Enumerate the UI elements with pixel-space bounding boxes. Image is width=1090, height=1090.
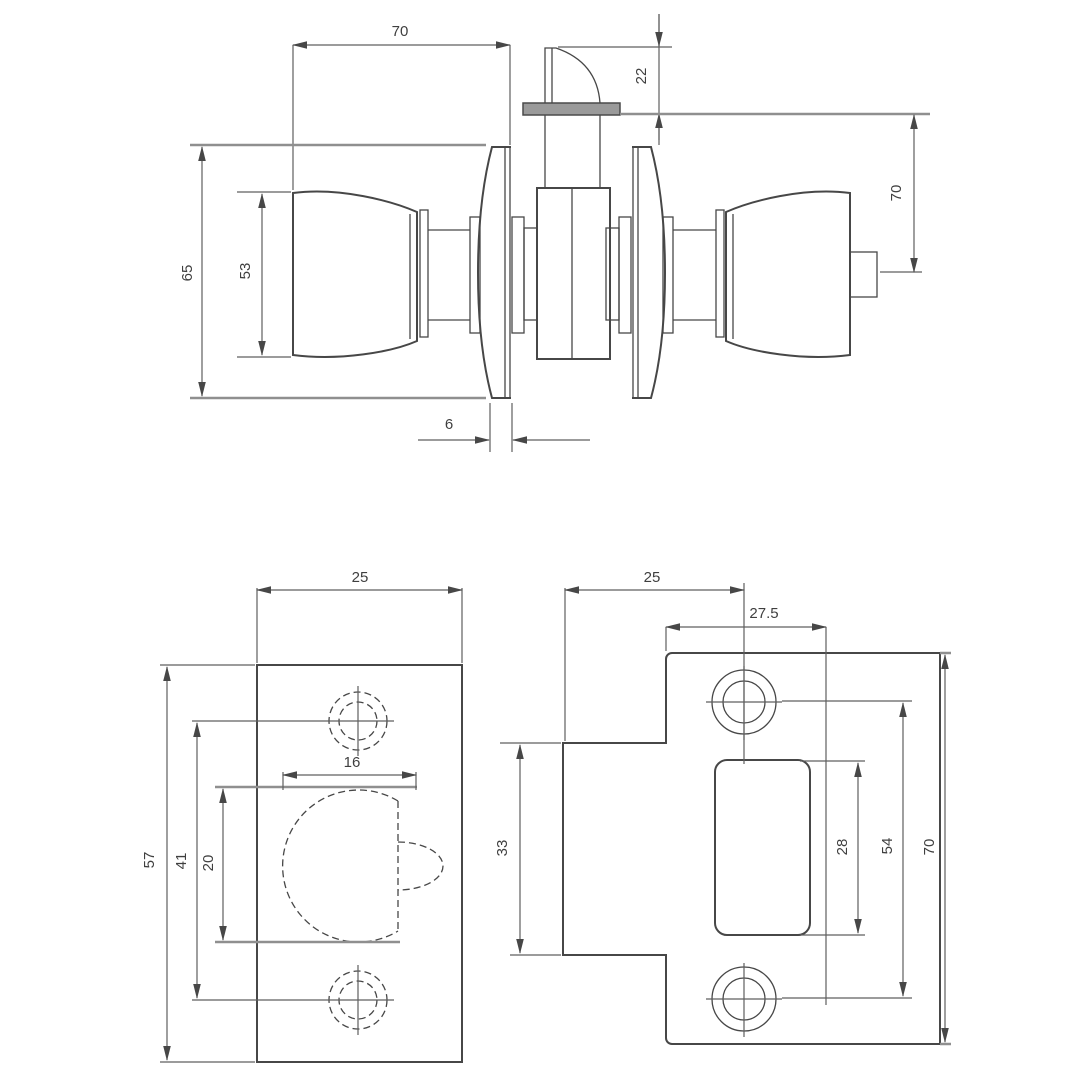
dim-strike-hole-spacing: 54 [879, 703, 903, 996]
latch-bolt-assembly [523, 48, 620, 188]
chassis [537, 188, 610, 359]
right-rose-face [633, 147, 638, 398]
dim-bolt-height-label: 20 [200, 855, 217, 872]
dim-strike-hole-spacing-label: 54 [879, 838, 896, 855]
dim-latch-plate-width-label: 25 [352, 569, 369, 586]
dim-strike-lip-to-center-label: 25 [644, 569, 661, 586]
dim-latch-plate-height-label: 57 [141, 852, 158, 869]
dim-knob-projection: 70 [293, 23, 510, 190]
dim-strike-plate-height: 70 [921, 655, 945, 1042]
left-spacer-outer [512, 217, 524, 333]
dim-strike-opening-height-label: 28 [834, 839, 851, 856]
knob-side-view: 70 22 70 65 53 [179, 14, 930, 452]
dim-rose-thickness-label: 6 [445, 416, 453, 433]
dim-strike-lip-to-center: 25 [565, 569, 744, 741]
dim-backset-label: 70 [888, 185, 905, 202]
dim-knob-diameter-label: 53 [237, 263, 254, 280]
latch-bottom-screw-hole [192, 965, 394, 1035]
left-neck [428, 230, 470, 320]
dim-latch-bolt-throw-label: 22 [633, 68, 650, 85]
latch-top-screw-hole [192, 686, 394, 756]
dim-bolt-width: 16 [283, 754, 416, 790]
dim-strike-lip-height: 33 [494, 743, 561, 955]
dim-strike-edge-to-opening: 27.5 [666, 605, 826, 1005]
dim-strike-lip-height-label: 33 [494, 840, 511, 857]
right-spacer-inner [606, 228, 619, 320]
deadlock-plunger [398, 842, 443, 890]
dim-rose-diameter-label: 65 [179, 265, 196, 282]
right-rose [606, 147, 665, 398]
left-knob-ferrule [420, 210, 428, 337]
latch-bolt-hidden-outline [215, 787, 443, 942]
dim-knob-projection-label: 70 [392, 23, 409, 40]
dim-latch-plate-height: 57 [141, 665, 255, 1062]
dim-backset: 70 [620, 114, 930, 272]
latch-faceplate-view: 25 16 57 41 20 [141, 569, 462, 1062]
left-knob-outline [293, 192, 417, 357]
dim-latch-bolt-throw: 22 [558, 14, 672, 145]
dim-bolt-height: 20 [200, 789, 223, 940]
dim-latch-plate-width: 25 [257, 569, 462, 663]
left-rose-face [505, 147, 510, 398]
dim-rose-diameter: 65 [179, 145, 486, 398]
dim-latch-hole-spacing-label: 41 [173, 853, 190, 870]
right-knob [663, 192, 877, 357]
dim-bolt-width-label: 16 [344, 754, 361, 771]
strike-bottom-screw-hole [706, 963, 912, 1037]
dim-strike-edge-to-opening-label: 27.5 [749, 605, 778, 622]
latch-faceplate-edge [523, 103, 620, 115]
latch-barrel [545, 115, 600, 188]
latch-plate-outline [257, 665, 462, 1062]
left-knob [293, 192, 480, 357]
right-neck [673, 230, 716, 320]
dim-knob-diameter: 53 [237, 192, 291, 357]
left-spacer-inner [524, 228, 537, 320]
dim-rose-thickness: 6 [418, 403, 590, 452]
chassis-body [537, 188, 610, 359]
left-rose [478, 147, 537, 398]
technical-drawing-page: 70 22 70 65 53 [0, 0, 1090, 1090]
right-knob-ferrule [716, 210, 724, 337]
right-spacer-outer [619, 217, 631, 333]
spindle-end [850, 252, 877, 297]
dim-strike-plate-height-label: 70 [921, 839, 938, 856]
strike-top-screw-hole [706, 666, 912, 740]
dim-latch-hole-spacing: 41 [173, 723, 197, 998]
strike-plate-view: 25 27.5 33 28 54 70 [494, 569, 951, 1044]
lockset-drawing: 70 22 70 65 53 [0, 0, 1090, 1090]
dim-strike-opening-height: 28 [834, 763, 858, 933]
latch-bolt-profile [545, 48, 600, 103]
right-knob-outline [726, 192, 850, 357]
